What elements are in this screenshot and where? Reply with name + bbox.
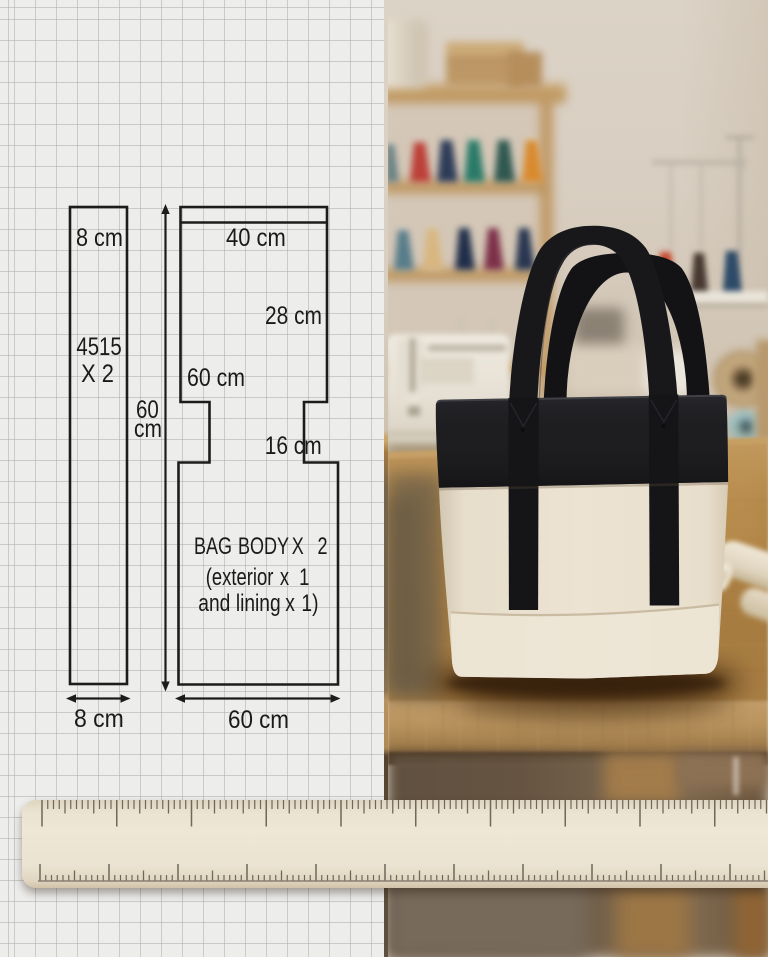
svg-text:cm: cm: [134, 414, 162, 442]
svg-text:X 2: X 2: [81, 360, 114, 388]
svg-text:16 cm: 16 cm: [265, 431, 322, 459]
svg-text:28 cm: 28 cm: [265, 301, 322, 329]
svg-text:4515: 4515: [76, 332, 121, 361]
svg-text:8 cm: 8 cm: [76, 224, 123, 252]
svg-text:60 cm: 60 cm: [187, 363, 245, 391]
svg-text:8 cm: 8 cm: [74, 705, 124, 733]
svg-text:BAGBODYX2: BAGBODYX2: [194, 534, 328, 560]
svg-text:40 cm: 40 cm: [226, 224, 286, 252]
svg-text:60 cm: 60 cm: [228, 707, 289, 734]
svg-text:(exteriorx1: (exteriorx1: [206, 564, 310, 591]
svg-text:andliningx1): andliningx1): [198, 589, 318, 617]
